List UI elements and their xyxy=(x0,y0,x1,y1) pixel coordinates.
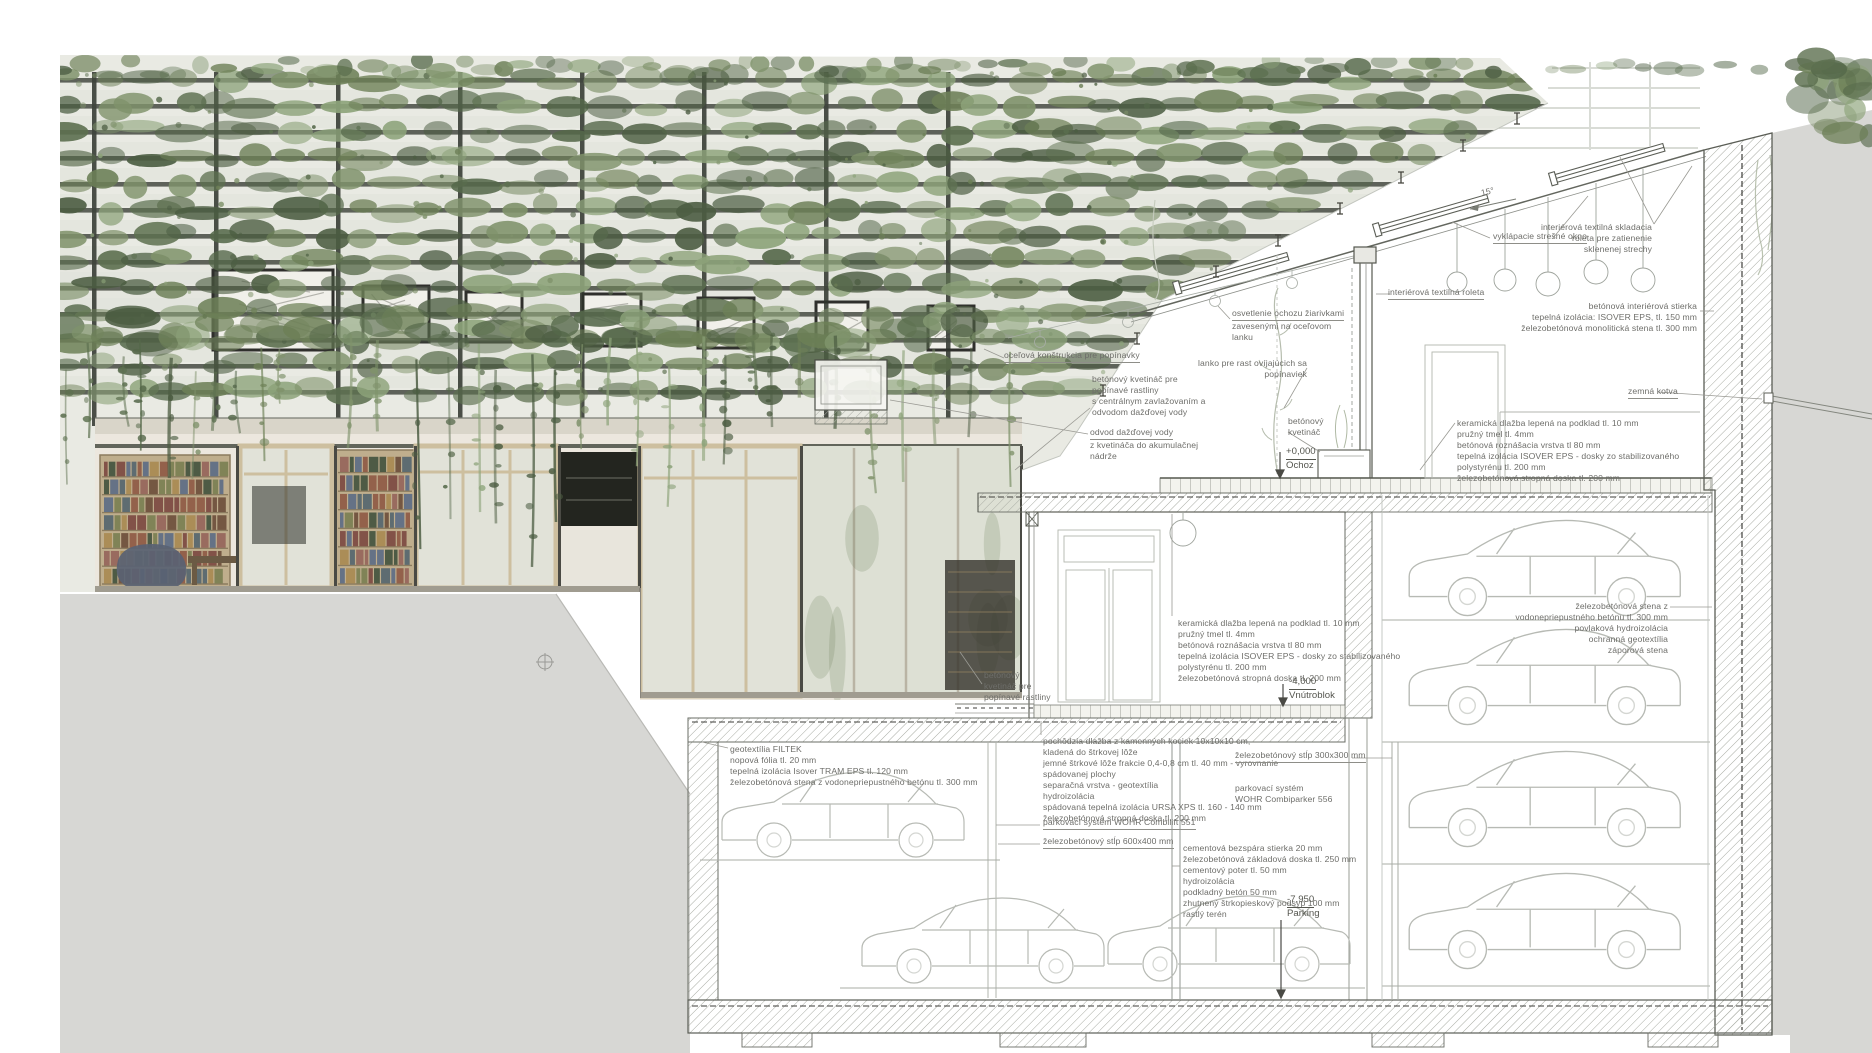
terrain-right xyxy=(1772,110,1872,1053)
terrain-left xyxy=(60,594,690,1053)
shaft-divider-wall xyxy=(1345,512,1372,1000)
room-pendant-lamp xyxy=(1170,520,1196,546)
right-retaining-wall xyxy=(1704,133,1772,1035)
section-drawing xyxy=(0,0,1872,1053)
top-right-vegetation xyxy=(1545,47,1872,147)
interior-glazing xyxy=(1352,247,1376,478)
roof-room-interior xyxy=(1425,345,1700,478)
planter-box-ochoz xyxy=(1318,405,1370,478)
pendant-lamps xyxy=(1447,169,1655,296)
architectural-section-canvas: 15°vyklápacie strešné oknointeriérová te… xyxy=(0,0,1872,1053)
planter-box-top xyxy=(815,360,887,424)
interior-door xyxy=(1058,530,1160,702)
vnutroblok-floor-slab xyxy=(688,704,1345,742)
middle-room xyxy=(1029,512,1345,718)
